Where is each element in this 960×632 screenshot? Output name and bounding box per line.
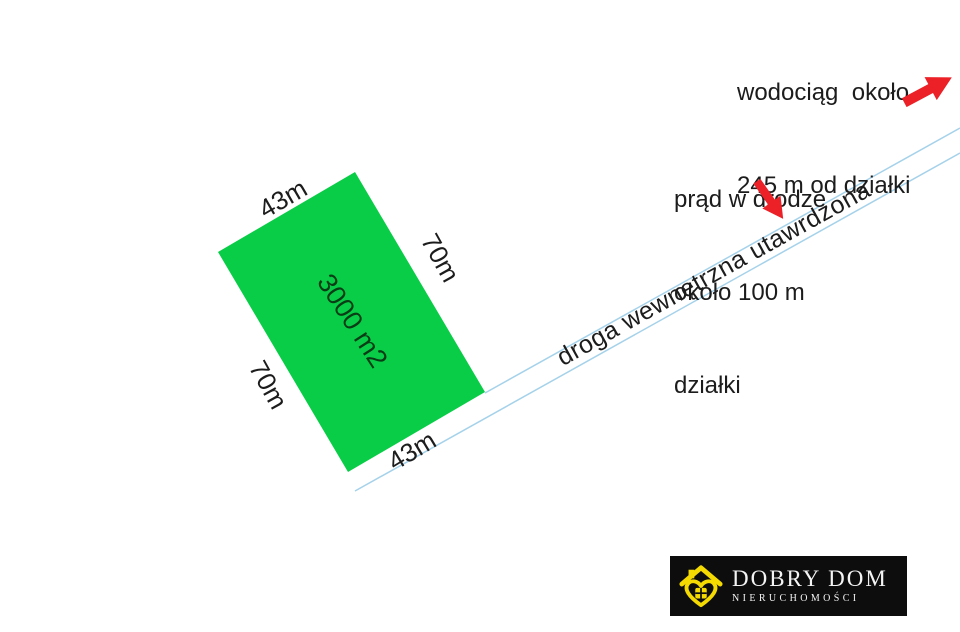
plot-diagram: 43m 70m 70m 43m 3000 m2 droga wewnętrzna…: [0, 0, 960, 632]
power-annotation-line3: działki: [674, 370, 826, 401]
logo-title: DOBRY DOM: [732, 567, 888, 591]
house-heart-icon: [678, 563, 724, 609]
power-annotation-line2: około 100 m: [674, 277, 826, 308]
logo-subtitle: NIERUCHOMOŚCI: [732, 593, 860, 605]
agency-logo: DOBRY DOM NIERUCHOMOŚCI: [670, 556, 907, 616]
logo-text-block: DOBRY DOM NIERUCHOMOŚCI: [732, 567, 888, 605]
power-annotation: prąd w drodze około 100 m działki: [674, 122, 826, 463]
water-annotation-line1: wodociąg około: [737, 77, 910, 108]
